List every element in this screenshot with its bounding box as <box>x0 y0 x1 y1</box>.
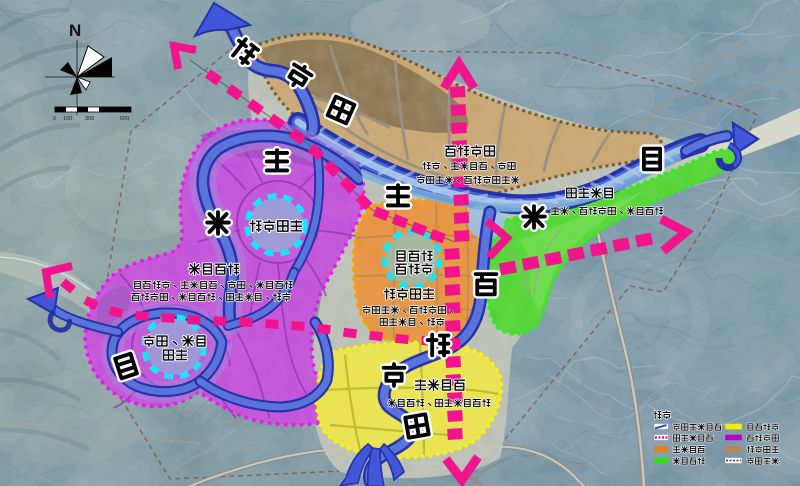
svg-text:300: 300 <box>85 116 94 122</box>
svg-text:600: 600 <box>120 116 129 122</box>
svg-text:N: N <box>69 21 81 40</box>
svg-text:0: 0 <box>53 116 56 122</box>
svg-text:100: 100 <box>63 116 72 122</box>
